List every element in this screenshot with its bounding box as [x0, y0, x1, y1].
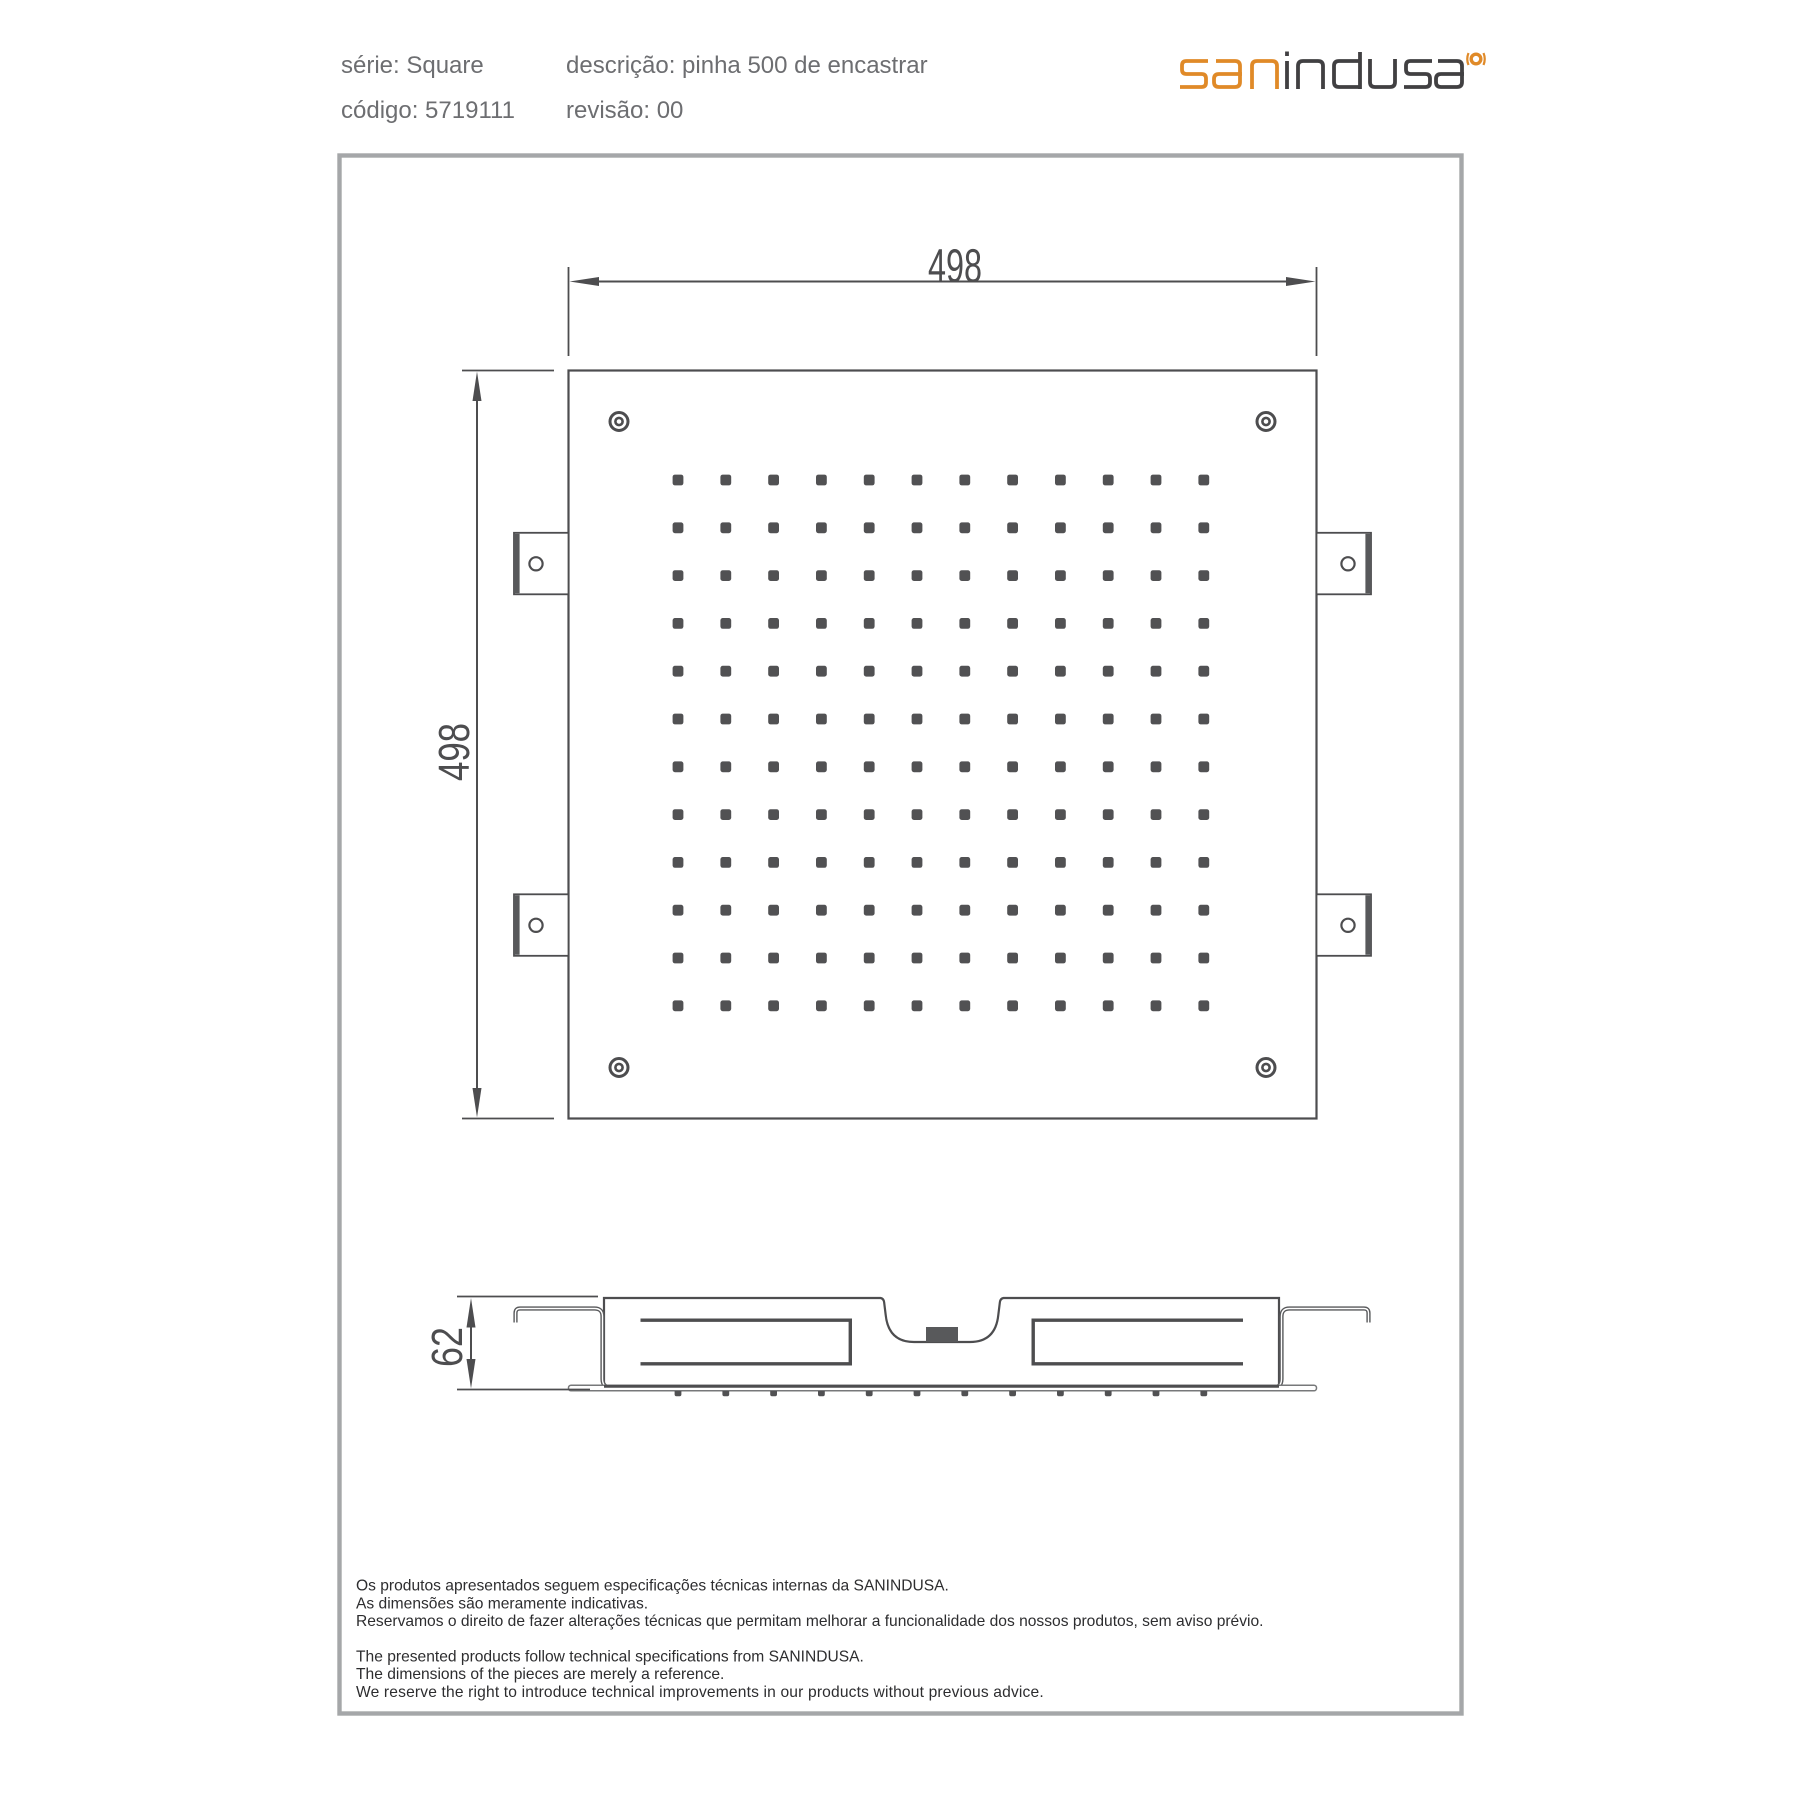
svg-text:Reservamos o direito de fazer: Reservamos o direito de fazer alterações…: [356, 1613, 1264, 1630]
svg-text:descrição: pinha 500 de encast: descrição: pinha 500 de encastrar: [566, 52, 928, 79]
svg-text:revisão: 00: revisão: 00: [566, 97, 683, 124]
svg-text:Os produtos apresentados segue: Os produtos apresentados seguem especifi…: [356, 1578, 949, 1595]
svg-text:498: 498: [928, 239, 982, 292]
svg-text:498: 498: [430, 723, 479, 781]
svg-text:The dimensions of the pieces a: The dimensions of the pieces are merely …: [356, 1666, 724, 1683]
svg-text:We reserve the right to introd: We reserve the right to introduce techni…: [356, 1684, 1044, 1701]
svg-text:As dimensões são meramente ind: As dimensões são meramente indicativas.: [356, 1595, 648, 1612]
svg-text:código: 5719111: código: 5719111: [341, 97, 515, 124]
svg-text:série: Square: série: Square: [341, 52, 484, 79]
svg-text:62: 62: [423, 1327, 472, 1367]
svg-text:The presented products follow: The presented products follow technical …: [356, 1648, 864, 1665]
